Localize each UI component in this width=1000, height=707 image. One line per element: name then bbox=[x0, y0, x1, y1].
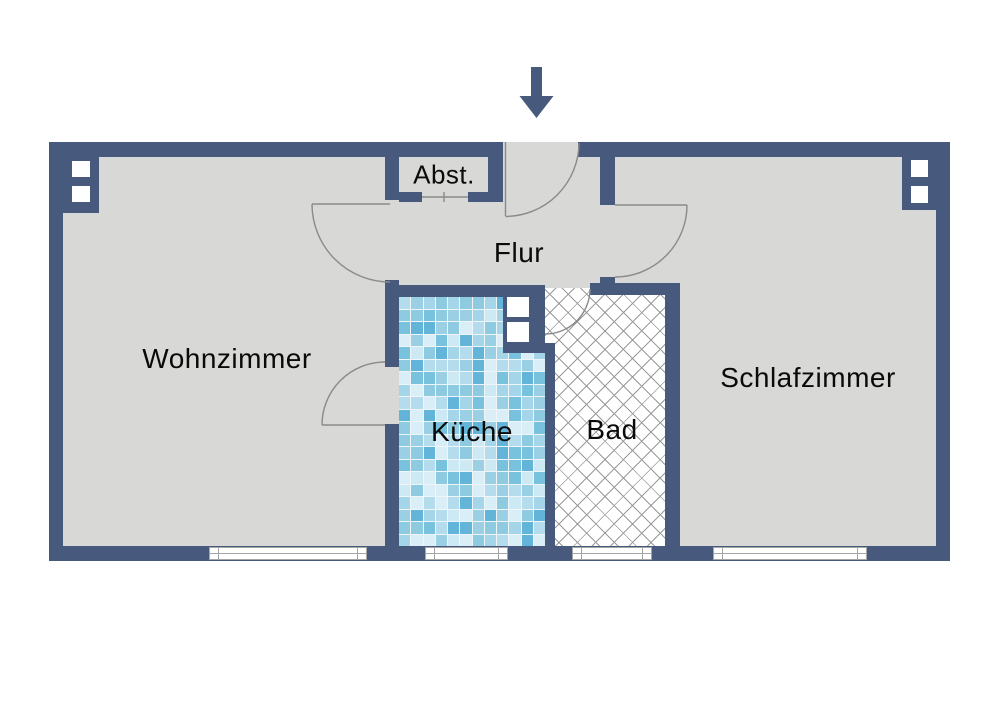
kitchen-tile bbox=[411, 335, 422, 347]
kitchen-tile bbox=[509, 372, 520, 384]
kitchen-tile bbox=[497, 360, 508, 372]
kitchen-tile bbox=[411, 447, 422, 459]
kitchen-tile bbox=[534, 510, 545, 522]
kitchen-tile bbox=[522, 497, 533, 509]
kitchen-tile bbox=[497, 397, 508, 409]
kitchen-tile bbox=[473, 485, 484, 497]
kitchen-tile bbox=[448, 385, 459, 397]
kitchen-tile bbox=[436, 497, 447, 509]
kitchen-tile bbox=[485, 310, 496, 322]
kitchen-tile bbox=[411, 497, 422, 509]
kitchen-tile bbox=[522, 372, 533, 384]
kitchen-tile bbox=[399, 497, 410, 509]
kitchen-tile bbox=[485, 322, 496, 334]
kitchen-tile bbox=[485, 397, 496, 409]
kitchen-tile bbox=[424, 397, 435, 409]
kitchen-tile bbox=[399, 447, 410, 459]
wall-bedroom-left-upper bbox=[600, 150, 615, 205]
kitchen-tile bbox=[424, 360, 435, 372]
kitchen-tile bbox=[485, 347, 496, 359]
kitchen-tile bbox=[522, 535, 533, 547]
room-label-wohnzimmer: Wohnzimmer bbox=[142, 343, 311, 375]
kitchen-tile bbox=[411, 422, 422, 434]
kitchen-tile bbox=[436, 335, 447, 347]
kitchen-tile bbox=[448, 460, 459, 472]
flue-opening bbox=[72, 186, 90, 202]
kitchen-tile bbox=[497, 497, 508, 509]
window-frame-tick bbox=[581, 548, 582, 559]
kitchen-tile bbox=[522, 360, 533, 372]
kitchen-tile bbox=[534, 372, 545, 384]
kitchen-tile bbox=[424, 460, 435, 472]
kitchen-tile bbox=[424, 447, 435, 459]
kitchen-tile bbox=[424, 347, 435, 359]
kitchen-tile bbox=[534, 472, 545, 484]
kitchen-tile bbox=[460, 297, 471, 309]
kitchen-tile bbox=[399, 472, 410, 484]
kitchen-tile bbox=[485, 360, 496, 372]
kitchen-tile bbox=[522, 422, 533, 434]
kitchen-tile bbox=[411, 510, 422, 522]
shaft-block-kitchen bbox=[503, 285, 545, 353]
kitchen-tile bbox=[509, 497, 520, 509]
kitchen-tile bbox=[436, 472, 447, 484]
kitchen-tile bbox=[485, 510, 496, 522]
kitchen-tile bbox=[485, 535, 496, 547]
wall-left bbox=[49, 142, 63, 561]
kitchen-tile bbox=[460, 460, 471, 472]
kitchen-tile bbox=[534, 397, 545, 409]
kitchen-tile bbox=[399, 460, 410, 472]
window-glass-line bbox=[573, 553, 651, 554]
kitchen-tile bbox=[497, 460, 508, 472]
kitchen-tile bbox=[436, 460, 447, 472]
kitchen-tile bbox=[534, 385, 545, 397]
kitchen-tile bbox=[473, 335, 484, 347]
kitchen-tile bbox=[473, 385, 484, 397]
duct-opening bbox=[507, 322, 529, 342]
kitchen-tile bbox=[473, 535, 484, 547]
kitchen-tile bbox=[485, 447, 496, 459]
kitchen-tile bbox=[460, 360, 471, 372]
kitchen-tile bbox=[448, 397, 459, 409]
window-frame-tick bbox=[857, 548, 858, 559]
window-glass-line bbox=[210, 553, 366, 554]
kitchen-tile bbox=[411, 460, 422, 472]
kitchen-tile bbox=[522, 435, 533, 447]
kitchen-tile bbox=[522, 410, 533, 422]
window-glass-line bbox=[426, 553, 507, 554]
kitchen-tile bbox=[436, 322, 447, 334]
kitchen-tile bbox=[534, 485, 545, 497]
wall-kitchen-bath-divider bbox=[545, 343, 555, 546]
wall-right bbox=[936, 142, 950, 561]
wall-top-right bbox=[578, 142, 950, 157]
wall-storage-bottom-left bbox=[399, 192, 422, 202]
kitchen-tile bbox=[399, 347, 410, 359]
kitchen-tile bbox=[485, 297, 496, 309]
kitchen-tile bbox=[460, 472, 471, 484]
kitchen-tile bbox=[436, 347, 447, 359]
kitchen-tile bbox=[534, 410, 545, 422]
room-label-flur: Flur bbox=[494, 237, 544, 269]
kitchen-tile bbox=[399, 422, 410, 434]
floor-plan: Wohnzimmer Flur Abst. Küche Bad Schlafzi… bbox=[0, 0, 1000, 707]
kitchen-tile bbox=[509, 485, 520, 497]
kitchen-tile bbox=[411, 435, 422, 447]
kitchen-tile bbox=[460, 535, 471, 547]
kitchen-tile bbox=[522, 472, 533, 484]
window-kitchen bbox=[425, 547, 508, 560]
entrance-arrow-icon bbox=[520, 67, 554, 118]
kitchen-tile bbox=[399, 535, 410, 547]
kitchen-tile bbox=[522, 460, 533, 472]
kitchen-tile bbox=[448, 510, 459, 522]
kitchen-tile bbox=[424, 522, 435, 534]
kitchen-tile bbox=[509, 447, 520, 459]
kitchen-tile bbox=[460, 347, 471, 359]
kitchen-tile bbox=[424, 385, 435, 397]
kitchen-tile bbox=[436, 297, 447, 309]
kitchen-tile bbox=[436, 510, 447, 522]
kitchen-tile bbox=[534, 360, 545, 372]
kitchen-tile bbox=[411, 485, 422, 497]
window-livingroom bbox=[209, 547, 367, 560]
kitchen-tile bbox=[460, 310, 471, 322]
kitchen-tile bbox=[460, 385, 471, 397]
kitchen-tile bbox=[411, 397, 422, 409]
kitchen-tile bbox=[411, 410, 422, 422]
kitchen-tile bbox=[399, 372, 410, 384]
window-bedroom bbox=[713, 547, 867, 560]
kitchen-tile bbox=[448, 497, 459, 509]
kitchen-tile bbox=[485, 522, 496, 534]
kitchen-tile bbox=[424, 497, 435, 509]
kitchen-tile bbox=[399, 435, 410, 447]
window-frame-tick bbox=[434, 548, 435, 559]
kitchen-tile bbox=[424, 297, 435, 309]
kitchen-tile bbox=[424, 510, 435, 522]
kitchen-tile bbox=[424, 372, 435, 384]
kitchen-tile bbox=[424, 310, 435, 322]
kitchen-tile bbox=[448, 522, 459, 534]
kitchen-tile bbox=[473, 397, 484, 409]
kitchen-tile bbox=[473, 310, 484, 322]
kitchen-tile bbox=[399, 385, 410, 397]
kitchen-tile bbox=[534, 497, 545, 509]
entrance-threshold bbox=[503, 142, 578, 157]
kitchen-tile bbox=[534, 422, 545, 434]
kitchen-tile bbox=[424, 322, 435, 334]
kitchen-tile bbox=[411, 372, 422, 384]
kitchen-tile bbox=[497, 372, 508, 384]
kitchen-tile bbox=[460, 372, 471, 384]
kitchen-tile bbox=[411, 385, 422, 397]
wall-kitchen-top bbox=[399, 285, 507, 297]
kitchen-tile bbox=[460, 522, 471, 534]
kitchen-tile bbox=[448, 310, 459, 322]
kitchen-tile bbox=[534, 535, 545, 547]
kitchen-tile bbox=[411, 322, 422, 334]
kitchen-tile bbox=[411, 297, 422, 309]
kitchen-tile bbox=[448, 297, 459, 309]
wall-bath-top-tab bbox=[600, 277, 615, 295]
window-glass-line bbox=[714, 553, 866, 554]
kitchen-tile bbox=[411, 347, 422, 359]
kitchen-tile bbox=[399, 485, 410, 497]
kitchen-tile bbox=[509, 472, 520, 484]
kitchen-tile bbox=[460, 335, 471, 347]
kitchen-tile bbox=[460, 497, 471, 509]
kitchen-tile bbox=[436, 535, 447, 547]
wall-livingroom-hall-upper bbox=[385, 142, 399, 200]
kitchen-tile bbox=[497, 485, 508, 497]
kitchen-tile bbox=[460, 447, 471, 459]
kitchen-tile bbox=[497, 535, 508, 547]
kitchen-tile bbox=[522, 397, 533, 409]
kitchen-tile bbox=[522, 522, 533, 534]
kitchen-tile bbox=[460, 485, 471, 497]
window-frame-tick bbox=[498, 548, 499, 559]
kitchen-tile bbox=[399, 360, 410, 372]
kitchen-tile bbox=[509, 522, 520, 534]
kitchen-tile bbox=[399, 297, 410, 309]
kitchen-tile bbox=[485, 472, 496, 484]
kitchen-tile bbox=[436, 372, 447, 384]
kitchen-tile bbox=[473, 322, 484, 334]
kitchen-tile bbox=[448, 335, 459, 347]
kitchen-tile bbox=[497, 510, 508, 522]
kitchen-tile bbox=[509, 397, 520, 409]
kitchen-tile bbox=[509, 510, 520, 522]
wall-livingroom-kitchen-lower bbox=[385, 424, 399, 546]
kitchen-tile bbox=[436, 397, 447, 409]
kitchen-tile bbox=[473, 510, 484, 522]
room-label-abstellraum: Abst. bbox=[413, 160, 475, 191]
kitchen-tile bbox=[473, 447, 484, 459]
kitchen-tile bbox=[424, 535, 435, 547]
kitchen-tile bbox=[436, 522, 447, 534]
kitchen-tile bbox=[473, 360, 484, 372]
kitchen-tile bbox=[522, 510, 533, 522]
window-frame-tick bbox=[722, 548, 723, 559]
kitchen-tile bbox=[485, 460, 496, 472]
room-label-kueche: Küche bbox=[431, 416, 513, 448]
kitchen-tile bbox=[485, 385, 496, 397]
kitchen-tile bbox=[436, 385, 447, 397]
kitchen-tile bbox=[411, 472, 422, 484]
kitchen-tile bbox=[448, 322, 459, 334]
kitchen-tile bbox=[534, 447, 545, 459]
kitchen-tile bbox=[424, 335, 435, 347]
window-bath bbox=[572, 547, 652, 560]
kitchen-tile bbox=[411, 310, 422, 322]
kitchen-tile bbox=[485, 335, 496, 347]
kitchen-tile bbox=[448, 447, 459, 459]
kitchen-tile bbox=[460, 397, 471, 409]
duct-opening bbox=[507, 297, 529, 317]
kitchen-tile bbox=[509, 360, 520, 372]
kitchen-tile bbox=[399, 522, 410, 534]
kitchen-tile bbox=[509, 385, 520, 397]
flue-opening bbox=[72, 161, 90, 177]
room-label-bad: Bad bbox=[586, 414, 637, 446]
kitchen-tile bbox=[534, 522, 545, 534]
kitchen-tile bbox=[448, 535, 459, 547]
kitchen-tile bbox=[522, 485, 533, 497]
kitchen-tile bbox=[424, 472, 435, 484]
kitchen-tile bbox=[448, 372, 459, 384]
kitchen-tile bbox=[436, 447, 447, 459]
kitchen-tile bbox=[399, 310, 410, 322]
room-label-schlafzimmer: Schlafzimmer bbox=[720, 362, 896, 394]
kitchen-tile bbox=[399, 322, 410, 334]
kitchen-tile bbox=[485, 485, 496, 497]
kitchen-tile bbox=[411, 360, 422, 372]
wall-storage-bottom-right bbox=[468, 192, 490, 202]
window-frame-tick bbox=[357, 548, 358, 559]
kitchen-tile bbox=[473, 460, 484, 472]
wall-top-left bbox=[49, 142, 503, 157]
kitchen-tile bbox=[522, 385, 533, 397]
kitchen-tile bbox=[448, 360, 459, 372]
kitchen-tile bbox=[497, 385, 508, 397]
kitchen-tile bbox=[473, 297, 484, 309]
kitchen-tile bbox=[497, 522, 508, 534]
kitchen-tile bbox=[448, 485, 459, 497]
kitchen-tile bbox=[411, 522, 422, 534]
kitchen-tile bbox=[473, 347, 484, 359]
kitchen-tile bbox=[534, 435, 545, 447]
kitchen-tile bbox=[399, 335, 410, 347]
kitchen-tile bbox=[399, 510, 410, 522]
kitchen-tile bbox=[497, 472, 508, 484]
kitchen-tile bbox=[436, 310, 447, 322]
flue-opening bbox=[911, 160, 928, 177]
kitchen-tile bbox=[473, 497, 484, 509]
kitchen-tile bbox=[436, 485, 447, 497]
kitchen-tile bbox=[485, 497, 496, 509]
kitchen-tile bbox=[485, 372, 496, 384]
kitchen-tile bbox=[497, 447, 508, 459]
kitchen-tile bbox=[473, 472, 484, 484]
kitchen-tile bbox=[399, 410, 410, 422]
flue-opening bbox=[911, 186, 928, 203]
kitchen-tile bbox=[509, 535, 520, 547]
wall-bath-bedroom-divider bbox=[665, 283, 680, 546]
kitchen-tile bbox=[460, 322, 471, 334]
kitchen-tile bbox=[534, 460, 545, 472]
kitchen-tile bbox=[522, 447, 533, 459]
window-frame-tick bbox=[218, 548, 219, 559]
window-frame-tick bbox=[642, 548, 643, 559]
kitchen-tile bbox=[473, 372, 484, 384]
kitchen-tile bbox=[448, 472, 459, 484]
wall-livingroom-kitchen-mid bbox=[385, 280, 399, 367]
kitchen-tile bbox=[436, 360, 447, 372]
kitchen-tile bbox=[460, 510, 471, 522]
kitchen-tile bbox=[473, 522, 484, 534]
kitchen-tile bbox=[411, 535, 422, 547]
kitchen-tile bbox=[424, 485, 435, 497]
kitchen-tile bbox=[399, 397, 410, 409]
wall-storage-right bbox=[488, 142, 503, 202]
kitchen-tile bbox=[509, 460, 520, 472]
kitchen-tile bbox=[448, 347, 459, 359]
